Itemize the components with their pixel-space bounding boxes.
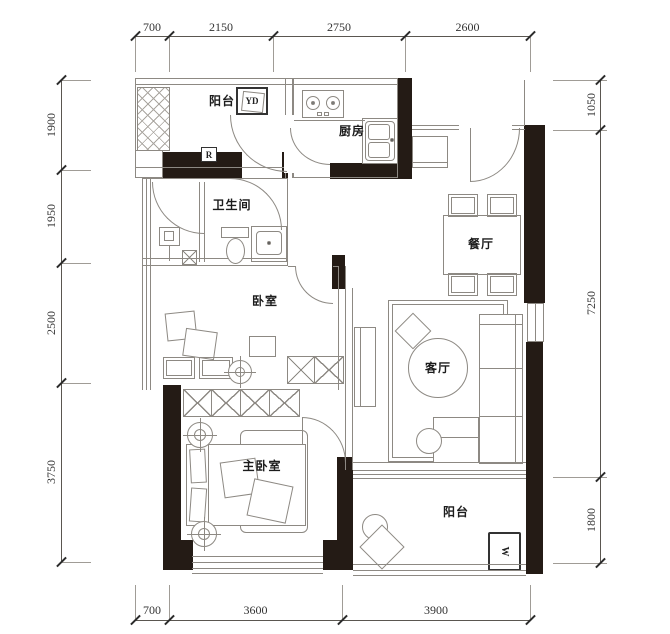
extension-line xyxy=(273,36,274,72)
balcony-rail-line xyxy=(135,84,293,85)
room-label-bedroom: 卧室 xyxy=(235,294,295,308)
extension-line xyxy=(61,80,91,81)
balcony-window-line xyxy=(353,570,526,571)
master-bed-headboard xyxy=(208,444,209,526)
stove-knob xyxy=(324,112,329,116)
extension-line xyxy=(61,170,91,171)
dim-label-top-3: 2600 xyxy=(405,20,530,34)
dim-label-left-3: 3750 xyxy=(44,452,58,492)
dining-chair xyxy=(487,273,517,296)
bedroom-top-edge xyxy=(333,266,338,267)
room-label-master: 主卧室 xyxy=(222,459,302,473)
ceiling-lamp-icon xyxy=(191,521,217,547)
dim-line-left xyxy=(61,80,62,563)
riser-box: R xyxy=(201,147,217,162)
master-wardrobe-cell xyxy=(269,389,300,417)
dim-label-bottom-1: 3600 xyxy=(169,603,342,617)
dim-label-top-2: 2750 xyxy=(273,20,405,34)
floor-drain-shaft xyxy=(182,250,197,265)
kitchen-counter-edge xyxy=(293,120,365,121)
entry-door-panel xyxy=(470,128,471,182)
dining-chair xyxy=(448,194,478,217)
entry-door-arc xyxy=(470,128,520,182)
bedroom-door-arc xyxy=(295,266,333,304)
building-edge xyxy=(524,80,525,125)
extension-line xyxy=(530,36,531,72)
extension-line xyxy=(530,585,531,620)
room-label-kitchen: 厨房 xyxy=(322,124,382,138)
dining-window-line xyxy=(535,303,536,342)
dim-label-top-0: 700 xyxy=(135,20,169,34)
ceiling-lamp-icon xyxy=(228,360,252,384)
stove-knob xyxy=(317,112,322,116)
lamp-inner xyxy=(194,429,206,441)
bedroom-wardrobe-cell xyxy=(287,356,315,384)
master-wardrobe-cell xyxy=(211,389,241,417)
toilet-bowl xyxy=(226,238,245,264)
master-wardrobe-cell xyxy=(183,389,212,417)
sofa-seat-line xyxy=(479,416,523,417)
stove-burner-dot xyxy=(311,101,315,105)
master-blanket xyxy=(246,478,293,523)
wall-master-sw-corner xyxy=(163,540,193,570)
bedroom-stool xyxy=(163,357,195,379)
sofa-seat-line xyxy=(479,368,523,369)
dim-label-right-2: 1800 xyxy=(584,500,598,540)
bedroom-top-edge xyxy=(288,266,295,267)
dim-label-right-0: 1050 xyxy=(584,85,598,125)
extension-line xyxy=(61,562,91,563)
extension-line xyxy=(61,263,91,264)
dim-line-top xyxy=(135,36,531,37)
riser-label: R xyxy=(202,148,216,161)
master-door-arc xyxy=(302,417,346,463)
dim-label-left-2: 2500 xyxy=(44,303,58,343)
wall-right-lower xyxy=(526,342,543,574)
bedroom-side-table xyxy=(249,336,276,357)
master-window-line xyxy=(192,562,323,563)
shoe-cabinet-line xyxy=(412,162,448,163)
dim-line-right xyxy=(600,80,601,563)
ceiling-lamp-icon xyxy=(187,422,213,448)
master-wardrobe-cell xyxy=(240,389,270,417)
wall-balcony-left-pillar xyxy=(337,457,353,570)
dim-line-bottom xyxy=(135,620,531,621)
kitchen-window-line xyxy=(293,84,398,85)
extension-line xyxy=(405,36,406,72)
room-label-living: 客厅 xyxy=(425,361,451,375)
sofa-main xyxy=(479,314,523,464)
dining-chair xyxy=(448,273,478,296)
dining-chair xyxy=(487,194,517,217)
washer-label: W xyxy=(487,537,522,566)
room-label-balcony-top: 阳台 xyxy=(192,94,252,108)
living-bedroom-divider xyxy=(345,288,353,470)
room-label-balcony-bottom: 阳台 xyxy=(426,505,486,519)
stove-burner-dot xyxy=(331,101,335,105)
living-bottom-edge xyxy=(353,462,526,463)
shower-head-inner xyxy=(164,231,174,241)
shoe-cabinet xyxy=(412,136,448,168)
sink-faucet xyxy=(390,138,394,142)
lamp-inner xyxy=(198,528,210,540)
vanity-faucet xyxy=(267,241,271,245)
lamp-inner xyxy=(235,367,245,377)
sofa-armrest-line xyxy=(479,324,523,325)
sofa-back-line xyxy=(515,314,516,464)
master-window-line xyxy=(192,568,323,569)
floor-plan: 700 2150 2750 2600 700 3600 3900 1900 19… xyxy=(0,0,670,634)
dim-label-right-1: 7250 xyxy=(584,283,598,323)
room-label-dining: 餐厅 xyxy=(451,237,511,251)
wall-right-upper xyxy=(524,125,545,303)
extension-line xyxy=(135,36,136,72)
master-window xyxy=(192,556,323,574)
extension-line xyxy=(169,36,170,72)
tv-cabinet-line xyxy=(360,327,361,407)
dim-label-left-0: 1900 xyxy=(44,105,58,145)
entry-top-wall xyxy=(412,125,459,130)
dim-label-bottom-2: 3900 xyxy=(342,603,530,617)
coffee-table: 客厅 xyxy=(408,338,468,398)
extension-line xyxy=(61,383,91,384)
bedroom-wardrobe-cell xyxy=(314,356,344,384)
dim-label-top-1: 2150 xyxy=(169,20,273,34)
side-table xyxy=(416,428,442,454)
shower-handle xyxy=(169,246,170,261)
bedroom-cushion xyxy=(182,328,218,360)
master-pillow xyxy=(189,449,207,484)
sink-basin xyxy=(368,142,390,158)
sliding-door-line xyxy=(353,474,526,475)
dim-label-left-1: 1950 xyxy=(44,196,58,236)
tv-cabinet xyxy=(354,327,376,407)
room-label-bathroom: 卫生间 xyxy=(197,198,267,212)
ac-unit-platform xyxy=(137,87,170,151)
wall-step xyxy=(135,150,163,178)
dim-label-bottom-0: 700 xyxy=(135,603,169,617)
